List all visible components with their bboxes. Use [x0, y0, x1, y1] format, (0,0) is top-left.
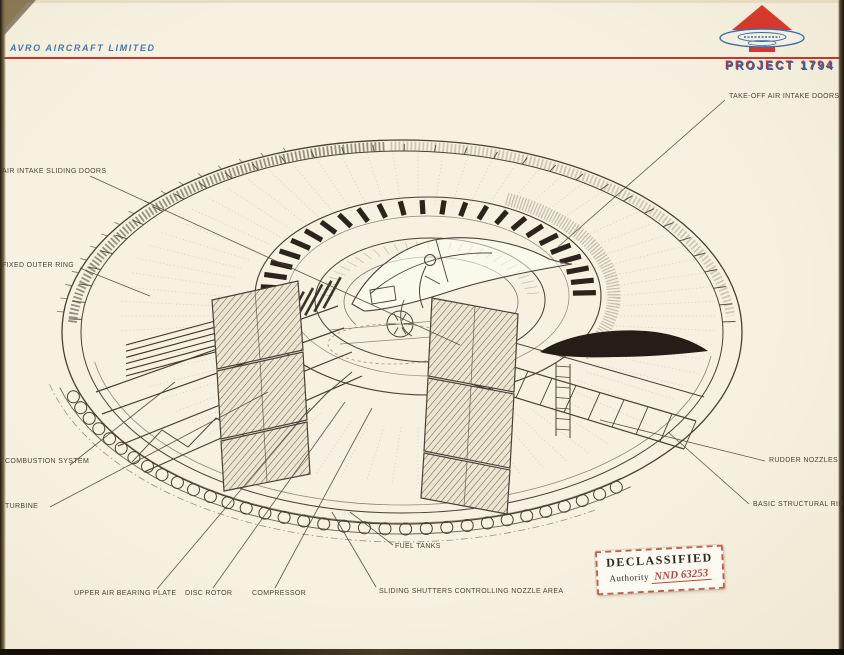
- diagram-label-disc-rotor: DISC ROTOR: [185, 590, 232, 597]
- page-edge-bottom: [0, 649, 844, 655]
- diagram-label-fixed-outer-ring: FIXED OUTER RING: [2, 262, 74, 269]
- diagram-label-compressor: COMPRESSOR: [252, 590, 306, 597]
- declassified-stamp: DECLASSIFIED Authority NND 63253: [595, 545, 725, 596]
- diagram-label-rudder-nozzles: RUDDER NOZZLES: [769, 457, 838, 464]
- diagram-label-upper-air-bearing-plate: UPPER AIR BEARING PLATE: [74, 590, 176, 597]
- stamp-authority-value: NND 63253: [651, 567, 712, 584]
- company-title: AVRO AIRCRAFT LIMITED: [10, 43, 156, 53]
- diagram-label-combustion-system: COMBUSTION SYSTEM: [5, 458, 89, 465]
- diagram-label-take-off-air-intake-doors: TAKE-OFF AIR INTAKE DOORS: [729, 93, 839, 100]
- diagram-label-air-intake-sliding-doors: AIR INTAKE SLIDING DOORS: [2, 168, 106, 175]
- diagram-label-basic-structural-ribs: BASIC STRUCTURAL RIBS: [753, 501, 844, 508]
- diagram-label-fuel-tanks: FUEL TANKS: [395, 543, 441, 550]
- diagram-label-turbine: TURBINE: [5, 503, 38, 510]
- project-title: PROJECT 1794: [726, 61, 836, 73]
- diagram-label-sliding-shutters-controlling-nozzle-area: SLIDING SHUTTERS CONTROLLING NOZZLE AREA: [379, 588, 563, 595]
- page-edge-top: [0, 0, 844, 3]
- stamp-authority-label: Authority: [609, 572, 649, 584]
- page-edge-left: [0, 0, 6, 655]
- avro-logo-icon: [716, 4, 808, 58]
- scanned-document-page: AVRO AIRCRAFT LIMITED PROJECT 1794 DECLA…: [0, 0, 844, 655]
